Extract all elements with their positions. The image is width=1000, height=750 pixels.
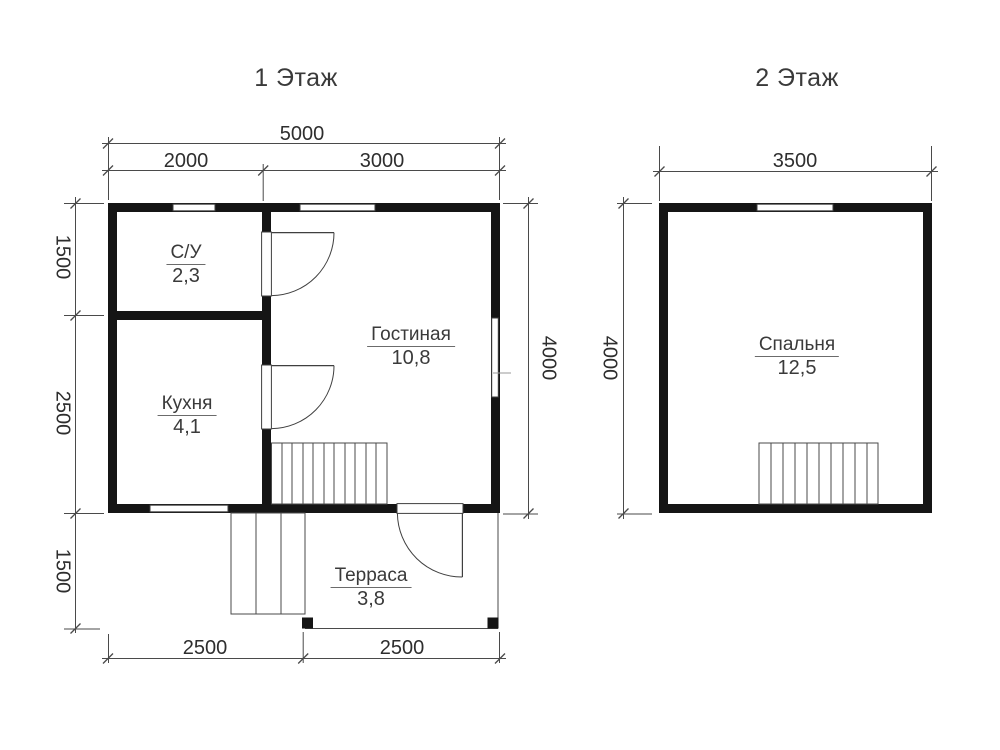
floor2-windows: [757, 204, 833, 211]
door-opening-kitchen: [262, 365, 272, 429]
floor1-doors: [262, 232, 463, 577]
wall-right: [923, 203, 932, 513]
room-name: Гостиная: [367, 324, 455, 347]
room-name: Кухня: [158, 393, 217, 416]
room-label-terrace: Терраса 3,8: [331, 565, 412, 610]
dim-bottom-left: 2500: [183, 637, 228, 660]
dimension-ticks: [71, 139, 534, 664]
wall-left: [659, 203, 668, 513]
door-arc-kitchen: [272, 366, 334, 429]
dim-bottom-right: 2500: [380, 637, 425, 660]
door-opening-bathroom: [262, 232, 272, 296]
dim-top-left: 2000: [164, 150, 209, 173]
room-name: Спальня: [755, 334, 839, 357]
room-name: Терраса: [331, 565, 412, 588]
window-livingroom-right: [492, 318, 499, 397]
wall-bottom: [659, 504, 932, 513]
room-area: 4,1: [158, 416, 217, 438]
wall-left: [108, 203, 117, 513]
terrace-post-right: [488, 618, 499, 629]
door-opening-terrace: [397, 504, 463, 514]
window-bathroom: [173, 204, 215, 211]
dim-top-right: 3000: [360, 150, 405, 173]
room-label-kitchen: Кухня 4,1: [158, 393, 217, 438]
window-bedroom: [757, 204, 833, 211]
dim-side-upper: 1500: [51, 235, 74, 280]
door-arc-bathroom: [272, 233, 334, 296]
room-label-bathroom: С/У 2,3: [166, 242, 205, 287]
room-area: 12,5: [755, 357, 839, 379]
wall-interior-horizontal: [108, 311, 271, 320]
room-name: С/У: [166, 242, 205, 265]
dim-side-middle: 2500: [51, 391, 74, 436]
floor2-title: 2 Этаж: [755, 64, 839, 93]
dim-side-lower: 1500: [51, 549, 74, 594]
floor2-stairs: [759, 443, 878, 504]
entry-steps: [231, 513, 305, 614]
room-area: 2,3: [166, 265, 205, 287]
floor-plan-drawing: [0, 0, 1000, 750]
window-livingroom-top: [300, 204, 375, 211]
room-label-livingroom: Гостиная 10,8: [367, 324, 455, 369]
terrace-post-left: [302, 618, 313, 629]
dim2-top-total: 3500: [773, 150, 818, 173]
dim-right: 4000: [537, 336, 560, 381]
dim-top-total: 5000: [280, 123, 325, 146]
room-label-bedroom: Спальня 12,5: [755, 334, 839, 379]
window-kitchen: [150, 505, 228, 512]
floor-plan-canvas: 1 Этаж 2 Этаж 5000 2000 3000 1500 2500 1…: [0, 0, 1000, 750]
floor1-title: 1 Этаж: [254, 64, 338, 93]
room-area: 10,8: [367, 347, 455, 369]
dim2-side: 4000: [598, 336, 621, 381]
room-area: 3,8: [331, 588, 412, 610]
floor1-stairs: [272, 443, 388, 504]
floor1-dimension-lines: [64, 137, 538, 664]
